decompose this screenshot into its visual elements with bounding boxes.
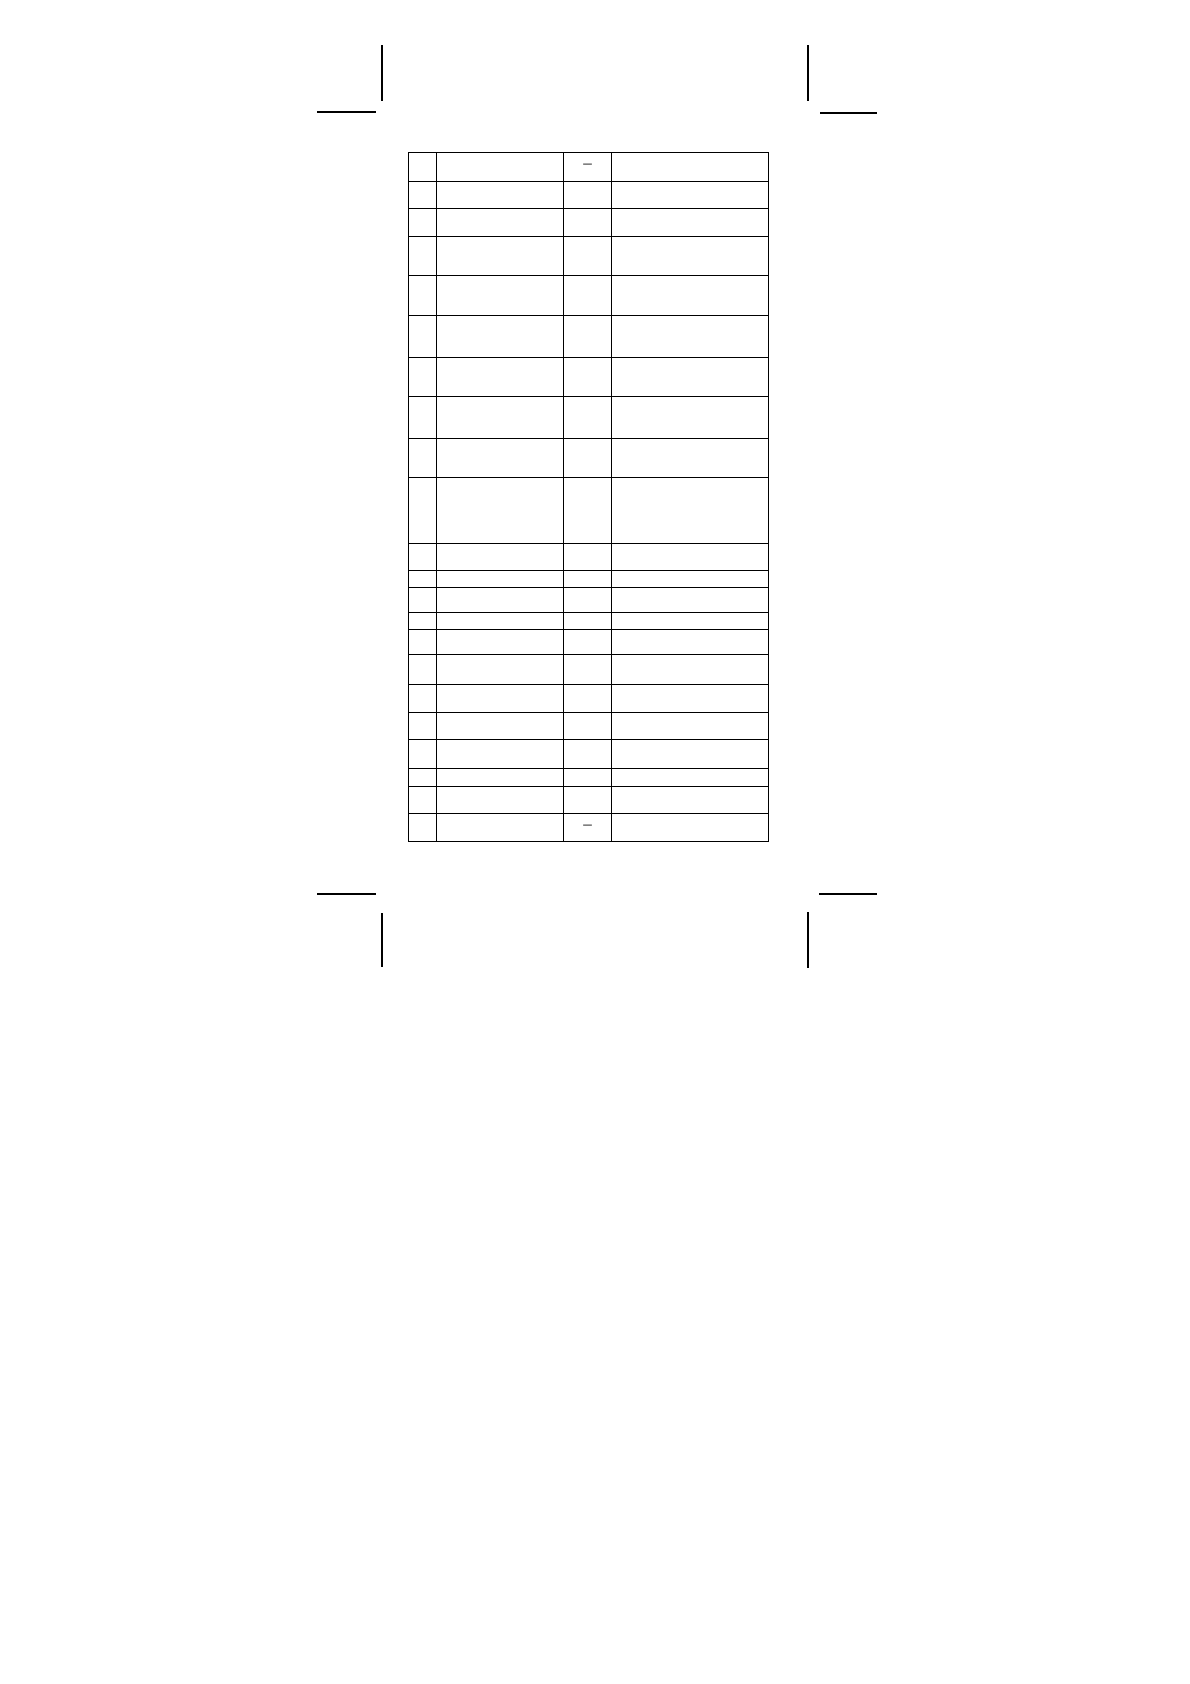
table-cell	[612, 787, 769, 814]
table-row	[409, 769, 769, 787]
table-cell	[612, 397, 769, 439]
crop-mark-bottom-right-vertical	[807, 912, 809, 968]
table-cell	[612, 740, 769, 769]
table-cell	[437, 630, 564, 655]
table-cell	[437, 713, 564, 740]
table-row	[409, 237, 769, 276]
table-cell	[437, 544, 564, 571]
crop-mark-bottom-left-vertical	[381, 913, 383, 967]
table-cell	[564, 740, 612, 769]
table-cell	[564, 397, 612, 439]
table-cell	[612, 358, 769, 397]
table-cell	[564, 613, 612, 630]
table-cell	[564, 630, 612, 655]
table-cell	[409, 209, 437, 237]
table-cell	[409, 153, 437, 182]
table-cell	[437, 740, 564, 769]
table-cell	[437, 316, 564, 358]
table-cell	[564, 588, 612, 613]
table-cell	[409, 769, 437, 787]
table-cell	[564, 237, 612, 276]
table-row	[409, 613, 769, 630]
table-cell	[564, 571, 612, 588]
table-cell	[409, 276, 437, 316]
crop-mark-top-right-vertical	[807, 45, 809, 101]
table-body: ––	[409, 153, 769, 842]
table-cell	[612, 655, 769, 685]
table-cell	[437, 588, 564, 613]
table-cell	[564, 209, 612, 237]
crop-mark-top-right-horizontal	[820, 112, 877, 114]
table-cell: –	[564, 153, 612, 182]
table-cell	[437, 613, 564, 630]
table-cell	[409, 613, 437, 630]
table-cell	[409, 571, 437, 588]
table-cell	[564, 316, 612, 358]
table-cell	[409, 397, 437, 439]
table-cell	[409, 544, 437, 571]
table-cell	[437, 787, 564, 814]
table-cell	[437, 478, 564, 544]
table-cell	[564, 713, 612, 740]
table-cell	[409, 713, 437, 740]
table-row	[409, 478, 769, 544]
table-cell	[409, 740, 437, 769]
table-cell	[409, 182, 437, 209]
table-row	[409, 182, 769, 209]
table-cell	[409, 685, 437, 713]
table-cell	[409, 439, 437, 478]
table-cell	[409, 630, 437, 655]
table-cell	[564, 544, 612, 571]
table-cell	[564, 769, 612, 787]
table-cell	[409, 787, 437, 814]
table-row	[409, 685, 769, 713]
document-page: ––	[0, 0, 1190, 1684]
table-cell	[612, 685, 769, 713]
table-cell	[612, 769, 769, 787]
table-cell	[612, 237, 769, 276]
table-cell	[612, 630, 769, 655]
table-cell	[612, 276, 769, 316]
table-cell	[437, 209, 564, 237]
table-cell	[612, 209, 769, 237]
table-row	[409, 787, 769, 814]
table-cell: –	[564, 814, 612, 842]
table-row	[409, 209, 769, 237]
table-cell	[437, 153, 564, 182]
table-cell	[612, 814, 769, 842]
table-row	[409, 439, 769, 478]
table-row	[409, 630, 769, 655]
table-cell	[564, 182, 612, 209]
table-row	[409, 655, 769, 685]
table-row	[409, 397, 769, 439]
crop-mark-top-left-vertical	[381, 45, 383, 101]
table-row: –	[409, 814, 769, 842]
table-cell	[437, 571, 564, 588]
table-cell	[409, 237, 437, 276]
table-cell	[612, 588, 769, 613]
table-cell	[564, 358, 612, 397]
table-row	[409, 740, 769, 769]
table-cell	[437, 655, 564, 685]
table-cell	[437, 358, 564, 397]
table-cell	[612, 182, 769, 209]
table-cell	[409, 588, 437, 613]
table-cell	[409, 814, 437, 842]
table-row	[409, 316, 769, 358]
table-cell	[409, 358, 437, 397]
table-cell	[612, 613, 769, 630]
table-cell	[612, 153, 769, 182]
table-row: –	[409, 153, 769, 182]
table-cell	[437, 685, 564, 713]
table-cell	[612, 478, 769, 544]
table-cell	[612, 544, 769, 571]
document-table: ––	[408, 152, 769, 842]
table-cell	[437, 237, 564, 276]
table-cell	[437, 769, 564, 787]
table-cell	[564, 685, 612, 713]
crop-mark-bottom-right-horizontal	[819, 893, 877, 895]
table-cell	[437, 814, 564, 842]
table-row	[409, 358, 769, 397]
crop-mark-bottom-left-horizontal	[317, 893, 376, 895]
table-row	[409, 544, 769, 571]
table-cell	[409, 478, 437, 544]
table-cell	[564, 655, 612, 685]
table-cell	[437, 276, 564, 316]
table-cell	[564, 478, 612, 544]
table-row	[409, 713, 769, 740]
table-row	[409, 276, 769, 316]
table-cell	[409, 655, 437, 685]
table-row	[409, 588, 769, 613]
table-cell	[437, 182, 564, 209]
table-cell	[564, 787, 612, 814]
table-cell	[437, 439, 564, 478]
crop-mark-top-left-horizontal	[317, 111, 376, 113]
table-cell	[437, 397, 564, 439]
table-cell	[564, 276, 612, 316]
table-cell	[612, 316, 769, 358]
table-cell	[612, 571, 769, 588]
table-row	[409, 571, 769, 588]
table-cell	[612, 713, 769, 740]
table-cell	[564, 439, 612, 478]
table-cell	[612, 439, 769, 478]
table-cell	[409, 316, 437, 358]
